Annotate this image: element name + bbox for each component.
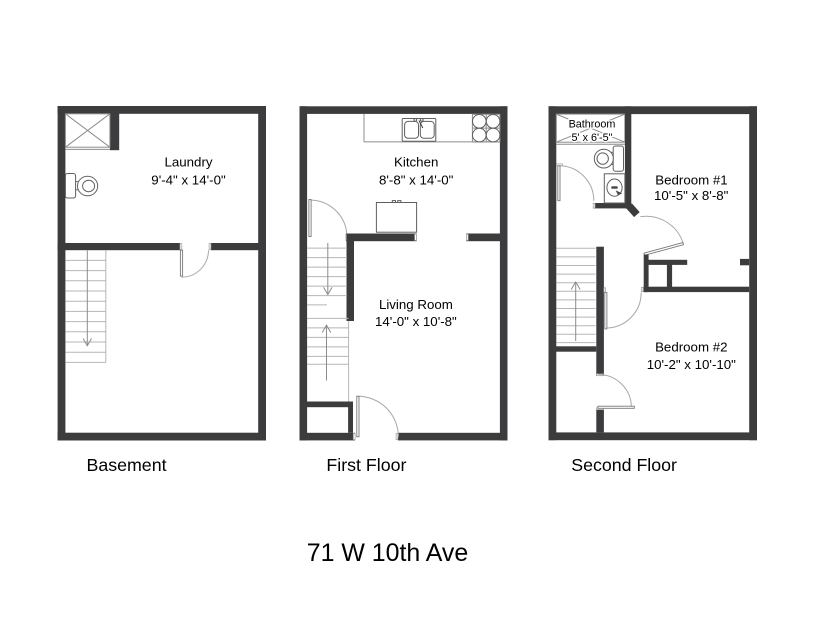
svg-text:14'-0" x 10'-8": 14'-0" x 10'-8" (375, 314, 457, 329)
svg-text:Laundry: Laundry (164, 154, 212, 169)
svg-text:Bedroom #2: Bedroom #2 (655, 339, 727, 354)
svg-text:10'-5" x 8'-8": 10'-5" x 8'-8" (654, 188, 729, 203)
svg-text:Living Room: Living Room (379, 297, 453, 312)
svg-text:8'-8" x 14'-0": 8'-8" x 14'-0" (379, 172, 454, 187)
svg-text:Basement: Basement (86, 455, 166, 475)
svg-text:Bathroom: Bathroom (569, 118, 616, 130)
svg-text:9'-4" x 14'-0": 9'-4" x 14'-0" (151, 173, 226, 188)
svg-text:Kitchen: Kitchen (394, 154, 438, 169)
svg-text:Second Floor: Second Floor (571, 455, 677, 475)
svg-text:5' x 6'-5": 5' x 6'-5" (572, 132, 613, 144)
svg-text:Bedroom #1: Bedroom #1 (655, 172, 727, 187)
svg-text:71 W 10th Ave: 71 W 10th Ave (307, 539, 468, 567)
svg-text:First Floor: First Floor (326, 455, 406, 475)
svg-text:10'-2" x 10'-10": 10'-2" x 10'-10" (647, 357, 736, 372)
